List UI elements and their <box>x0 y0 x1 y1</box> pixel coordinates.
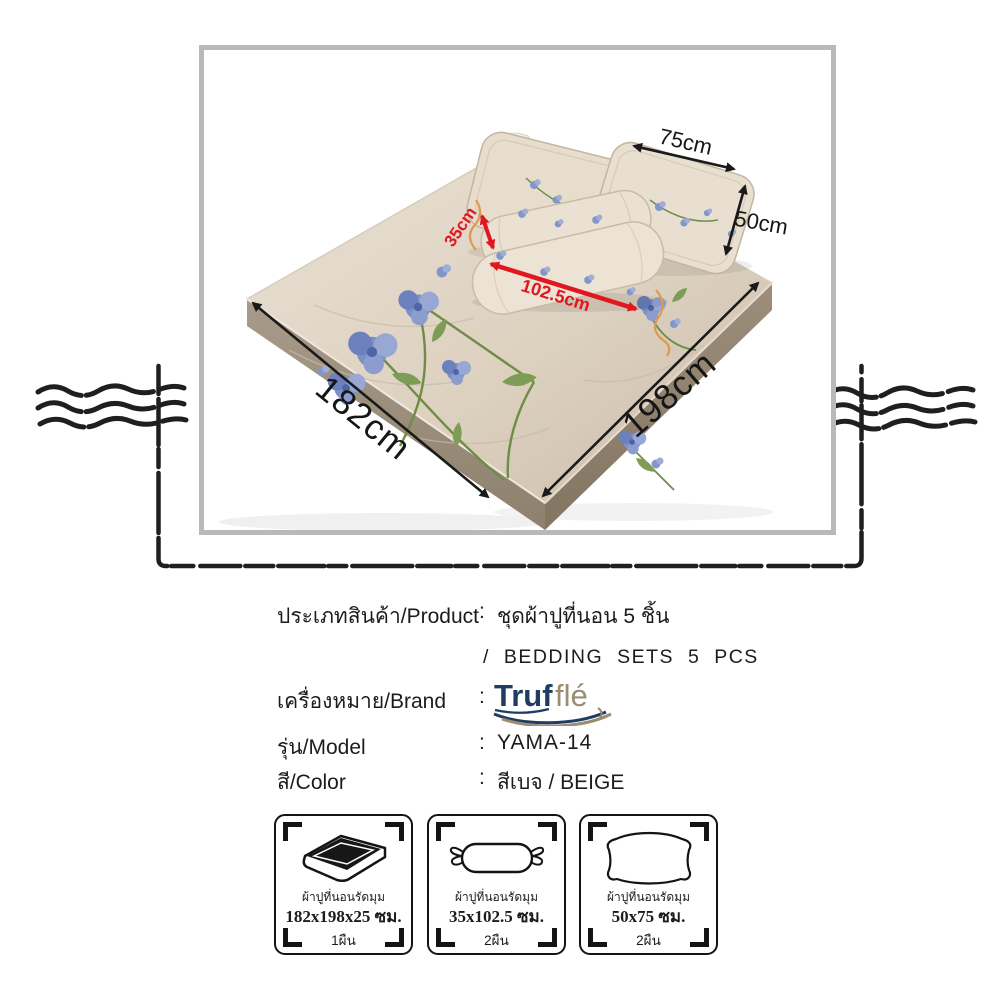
model-label: รุ่น/Model <box>277 731 366 764</box>
brand-logo-part1: Truf <box>494 678 553 713</box>
product-type-label: ประเภทสินค้า/Product <box>277 600 479 633</box>
brand-label: เครื่องหมาย/Brand <box>277 685 446 718</box>
spec-box-pillow-case: ผ้าปูที่นอนรัดมุม 50x75 ซม. 2ผืน <box>579 814 718 955</box>
pillow-icon <box>594 828 704 886</box>
spec-box-bolster-case: ผ้าปูที่นอนรัดมุม 35x102.5 ซม. 2ผืน <box>427 814 566 955</box>
brand-logo: Truf flé <box>492 674 620 726</box>
spec-item-quantity: 2ผืน <box>581 929 716 951</box>
product-type-value-english: / BEDDING SETS 5 PCS <box>483 646 759 669</box>
wave-lines-right <box>827 388 975 429</box>
brand-logo-part2: flé <box>555 678 588 713</box>
bolster-icon <box>442 828 552 886</box>
spec-box-fitted-sheet: ผ้าปูที่นอนรัดมุม 182x198x25 ซม. 1ผืน <box>274 814 413 955</box>
spec-item-quantity: 2ผืน <box>429 929 564 951</box>
mattress-icon <box>289 828 399 886</box>
color-label: สี/Color <box>277 766 346 799</box>
product-type-value-thai: ชุดผ้าปูที่นอน 5 ชิ้น <box>497 600 669 633</box>
separator: : <box>479 600 485 624</box>
bed-dimension-diagram: 75cm 50cm 35cm 102.5cm 182cm 198cm <box>204 50 831 530</box>
model-value: YAMA-14 <box>497 731 592 755</box>
bed-shadow <box>219 513 549 530</box>
color-value: สีเบจ / BEIGE <box>497 766 624 799</box>
separator: : <box>479 685 485 709</box>
diagram-frame: 75cm 50cm 35cm 102.5cm 182cm 198cm <box>199 45 836 535</box>
product-sheet: 75cm 50cm 35cm 102.5cm 182cm 198cm ประเภ… <box>0 0 1000 1000</box>
spec-item-size: 182x198x25 ซม. <box>276 903 411 930</box>
wave-lines-left <box>38 386 186 427</box>
spec-item-quantity: 1ผืน <box>276 929 411 951</box>
spec-item-size: 50x75 ซม. <box>581 903 716 930</box>
separator: : <box>479 766 485 790</box>
separator: : <box>479 731 485 755</box>
spec-item-size: 35x102.5 ซม. <box>429 903 564 930</box>
